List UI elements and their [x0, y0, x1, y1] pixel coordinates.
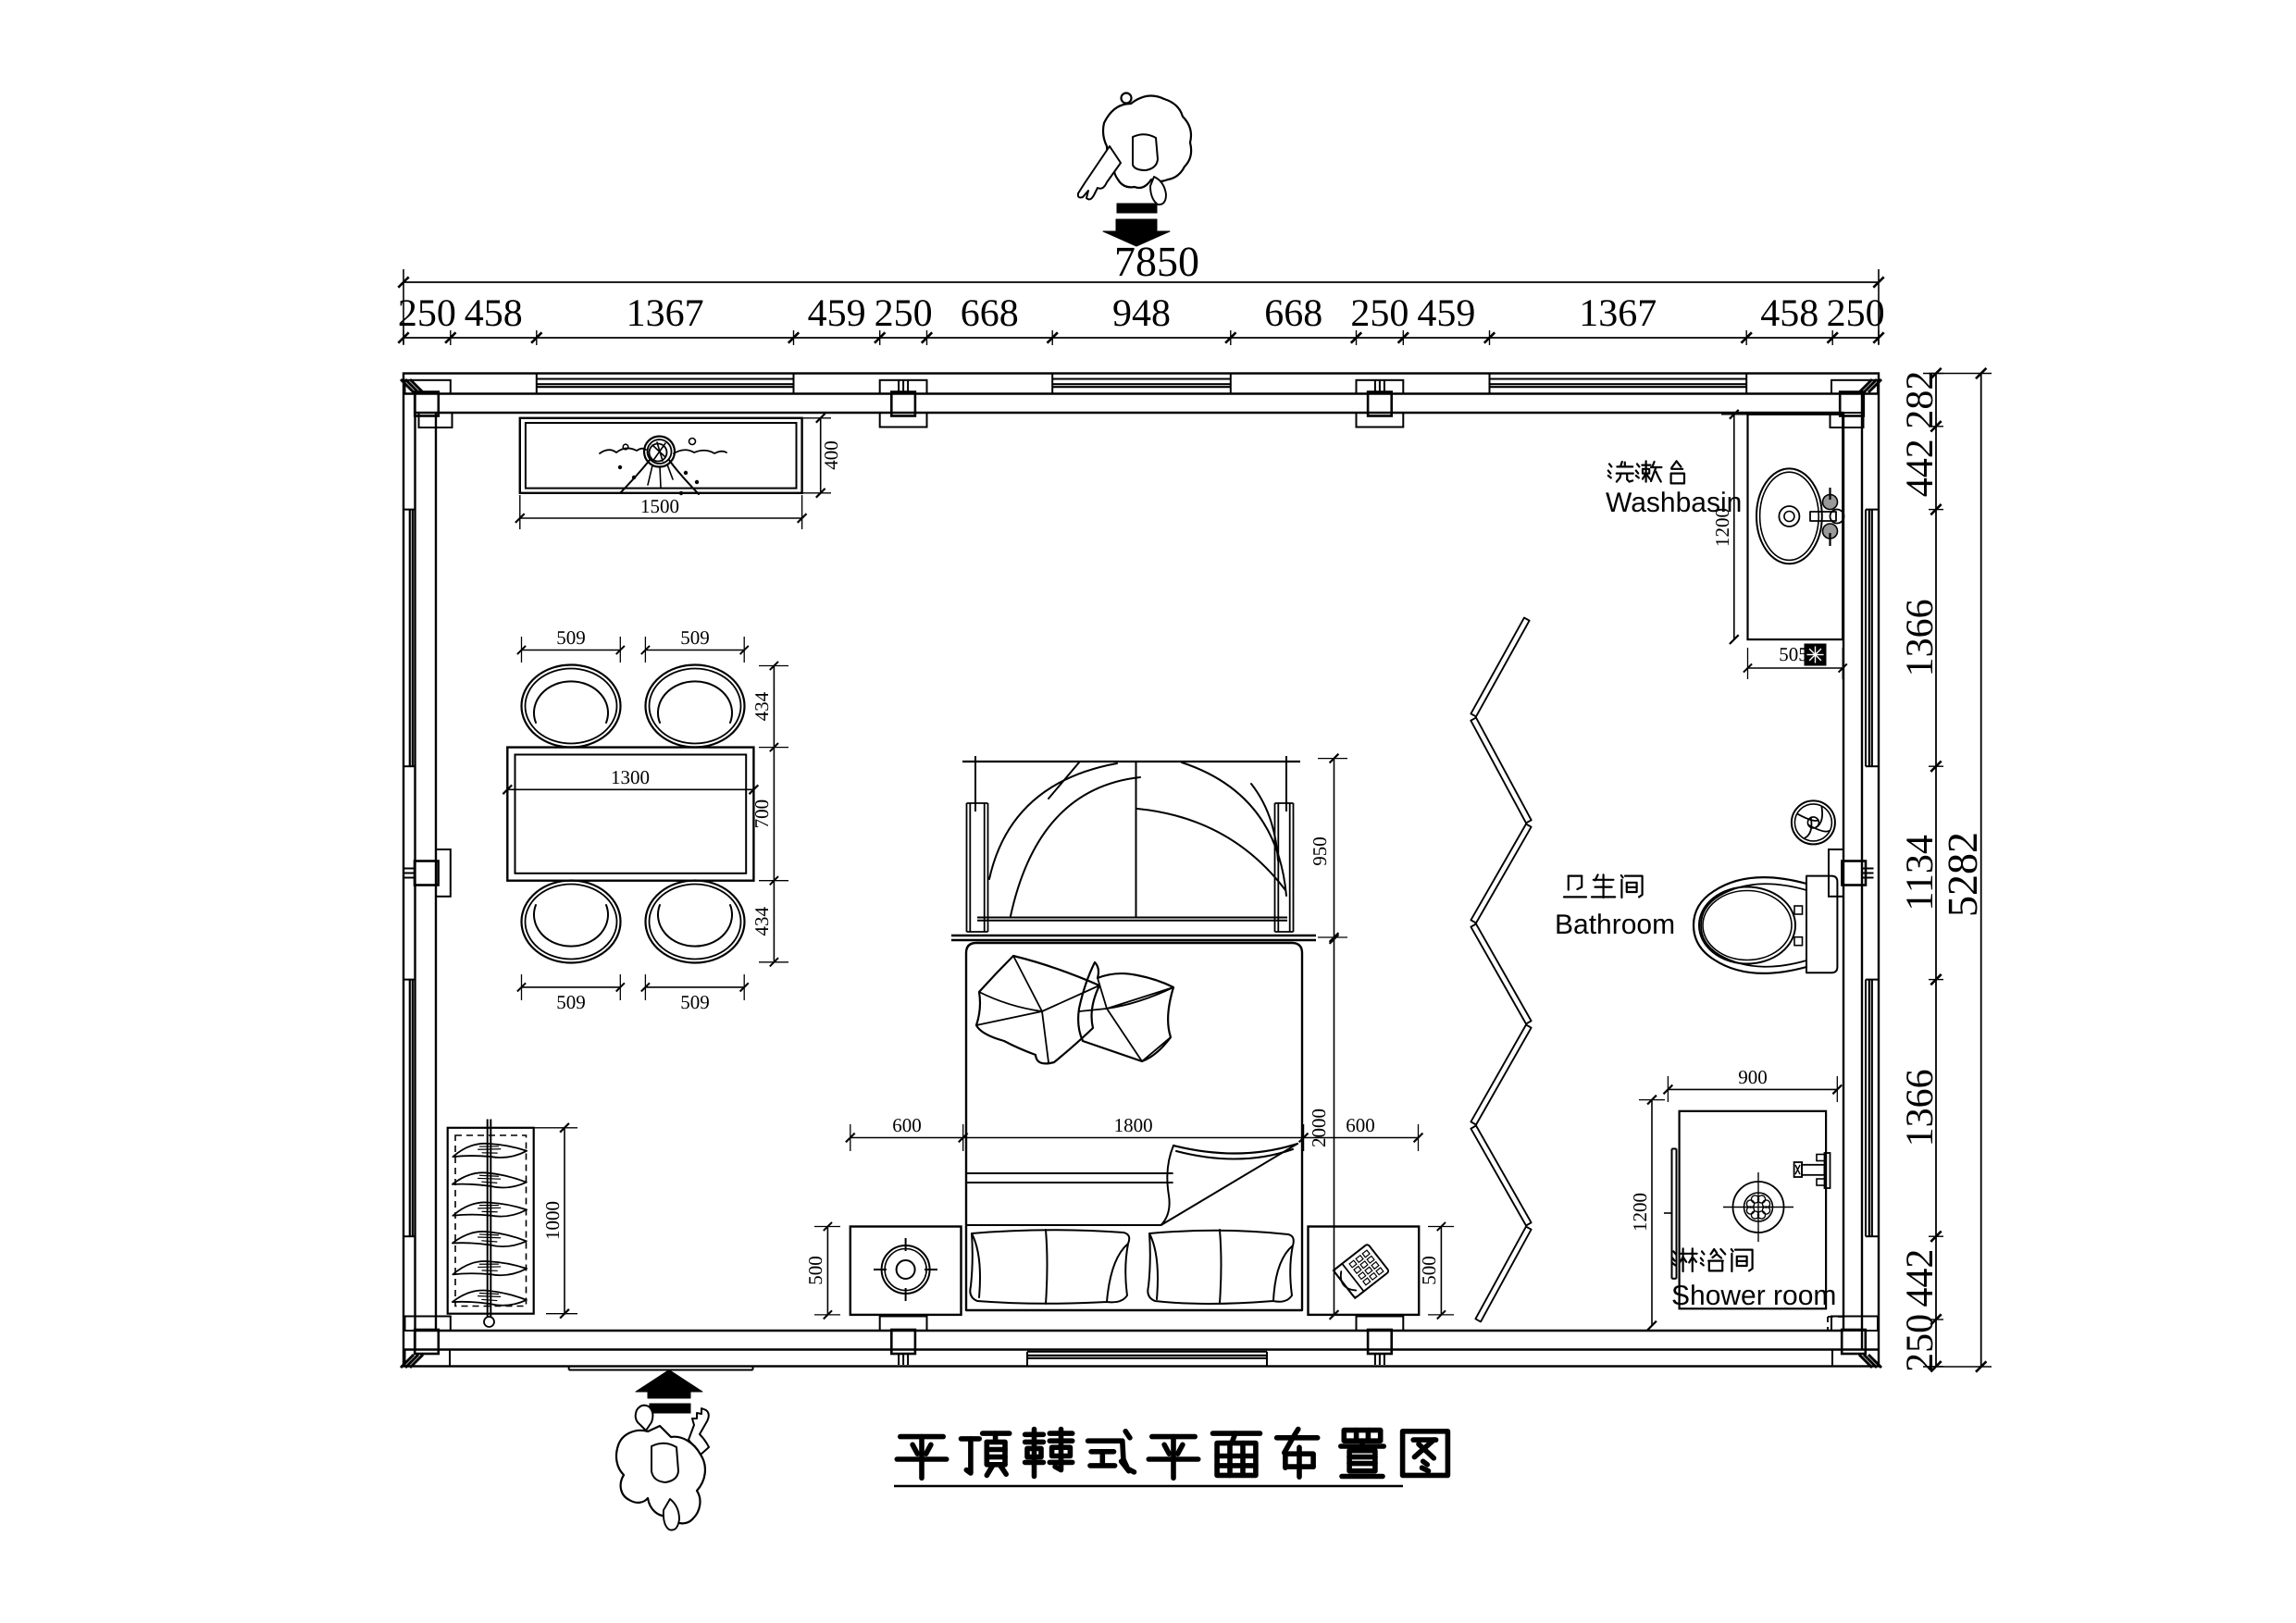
- svg-text:500: 500: [804, 1256, 826, 1285]
- svg-text:1500: 1500: [640, 495, 679, 517]
- svg-text:600: 600: [892, 1114, 922, 1136]
- svg-text:434: 434: [751, 691, 773, 721]
- svg-text:1367: 1367: [627, 292, 704, 335]
- svg-text:250: 250: [875, 292, 933, 335]
- svg-text:250: 250: [1899, 1314, 1942, 1372]
- svg-text:600: 600: [1346, 1114, 1375, 1136]
- svg-text:1200: 1200: [1629, 1193, 1651, 1232]
- svg-text:250: 250: [1827, 292, 1885, 335]
- svg-text:458: 458: [465, 292, 523, 335]
- svg-text:1366: 1366: [1899, 1069, 1942, 1146]
- svg-text:700: 700: [751, 799, 773, 829]
- svg-text:509: 509: [680, 626, 710, 649]
- svg-text:Bathroom: Bathroom: [1555, 910, 1675, 940]
- svg-text:2000: 2000: [1308, 1109, 1330, 1147]
- svg-text:900: 900: [1738, 1066, 1768, 1088]
- svg-text:948: 948: [1112, 292, 1171, 335]
- svg-text:7850: 7850: [1114, 238, 1199, 285]
- svg-text:Shower room: Shower room: [1671, 1281, 1836, 1311]
- svg-text:434: 434: [751, 906, 773, 935]
- svg-text:250: 250: [398, 292, 456, 335]
- svg-text:509: 509: [680, 991, 710, 1013]
- svg-text:Washbasin: Washbasin: [1606, 488, 1742, 518]
- svg-text:459: 459: [1417, 292, 1475, 335]
- svg-text:668: 668: [961, 292, 1019, 335]
- svg-text:1134: 1134: [1899, 835, 1942, 911]
- svg-text:282: 282: [1899, 371, 1942, 429]
- svg-text:458: 458: [1760, 292, 1818, 335]
- svg-text:1800: 1800: [1114, 1114, 1153, 1136]
- svg-text:505: 505: [1779, 643, 1808, 665]
- svg-text:509: 509: [556, 626, 586, 649]
- svg-text:400: 400: [820, 440, 842, 470]
- svg-text:1300: 1300: [611, 766, 650, 788]
- svg-text:5282: 5282: [1939, 832, 1986, 917]
- svg-text:500: 500: [1418, 1256, 1440, 1285]
- svg-text:668: 668: [1264, 292, 1322, 335]
- svg-text:1000: 1000: [541, 1201, 564, 1240]
- svg-text:459: 459: [808, 292, 866, 335]
- svg-text:442: 442: [1899, 439, 1942, 497]
- svg-text:1366: 1366: [1899, 599, 1942, 676]
- svg-text:442: 442: [1899, 1249, 1942, 1307]
- svg-text:1367: 1367: [1579, 292, 1657, 335]
- svg-text:250: 250: [1350, 292, 1409, 335]
- svg-text:509: 509: [556, 991, 586, 1013]
- svg-text:950: 950: [1309, 836, 1331, 866]
